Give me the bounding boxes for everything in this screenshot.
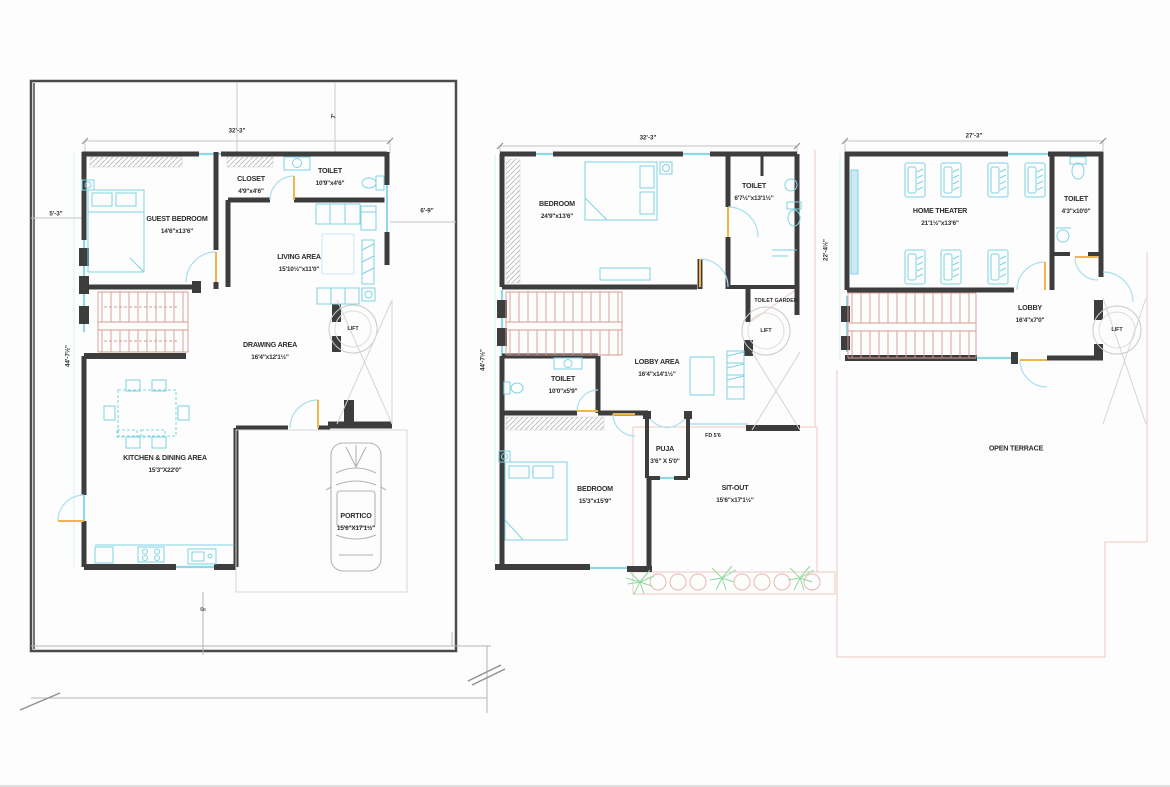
lift-label-first: LIFT — [760, 328, 771, 334]
room-label-lobby-area: LOBBY AREA 16'4"x14'1½" — [635, 356, 680, 380]
lift-label-ground: LIFT — [347, 326, 358, 332]
dim-first-left-height: 44'-7½" — [480, 349, 487, 371]
room-label-lobby-second: LOBBY 16'4"x7'0" — [1016, 302, 1045, 326]
plot-note: 6o — [200, 607, 206, 613]
room-label-toilet-second: TOILET 4'3"x10'0" — [1062, 193, 1091, 217]
dim-first-top-width: 32'-3" — [640, 135, 657, 142]
floorplan-canvas: 32'-3" 7' 5'-3" 44'-7½" 6'-9" CLOSET 4'9… — [0, 0, 1170, 787]
room-label-kitchen-dining: KITCHEN & DINING AREA 15'3"X22'0" — [123, 452, 207, 476]
room-label-portico: PORTICO 15'6"X17'1½" — [337, 510, 375, 534]
room-label-open-terrace: OPEN TERRACE — [989, 443, 1043, 456]
room-label-toilet-ground: TOILET 10'9"x4'6" — [316, 165, 345, 189]
room-label-toilet-mid-first: TOILET 10'0"x5'9" — [549, 373, 578, 397]
dim-second-top-width: 27'-3" — [966, 133, 983, 140]
room-label-sitout: SIT-OUT 15'6"x17'1½" — [716, 482, 753, 506]
floorplan-linework — [0, 0, 1170, 785]
lift-label-second: LIFT — [1111, 327, 1122, 333]
dim-ground-right-offset: 6'-9" — [420, 208, 433, 215]
room-label-toilet-garden: TOILET GARDEN — [754, 298, 797, 304]
room-label-toilet-top-first: TOILET 6'7½"x13'1½" — [734, 180, 773, 204]
label-fd: FD 5'6 — [705, 433, 721, 439]
room-label-closet: CLOSET 4'9"x4'6" — [237, 173, 265, 197]
room-label-home-theater: HOME THEATER 21'1½"x13'6" — [913, 205, 967, 229]
dim-ground-left-height: 44'-7½" — [65, 345, 72, 367]
room-label-living-area: LIVING AREA 15'10½"x11'0" — [277, 251, 321, 275]
room-label-guest-bedroom: GUEST BEDROOM 14'6"x13'6" — [146, 213, 207, 237]
dim-ground-left-small: 5'-3" — [49, 211, 62, 218]
dim-ground-top-offset: 7' — [331, 114, 338, 119]
dim-ground-top-width: 32'-3" — [229, 128, 246, 135]
room-label-puja: PUJA 3'6" X 5'0" — [650, 443, 679, 467]
room-label-drawing-area: DRAWING AREA 16'4"x12'1½" — [243, 339, 297, 363]
room-label-bedroom-first: BEDROOM 24'9"x13'6" — [539, 198, 575, 222]
dim-second-left-height: 22'-4½" — [823, 239, 830, 261]
room-label-bedroom2-first: BEDROOM 15'3"x15'9" — [577, 483, 613, 507]
